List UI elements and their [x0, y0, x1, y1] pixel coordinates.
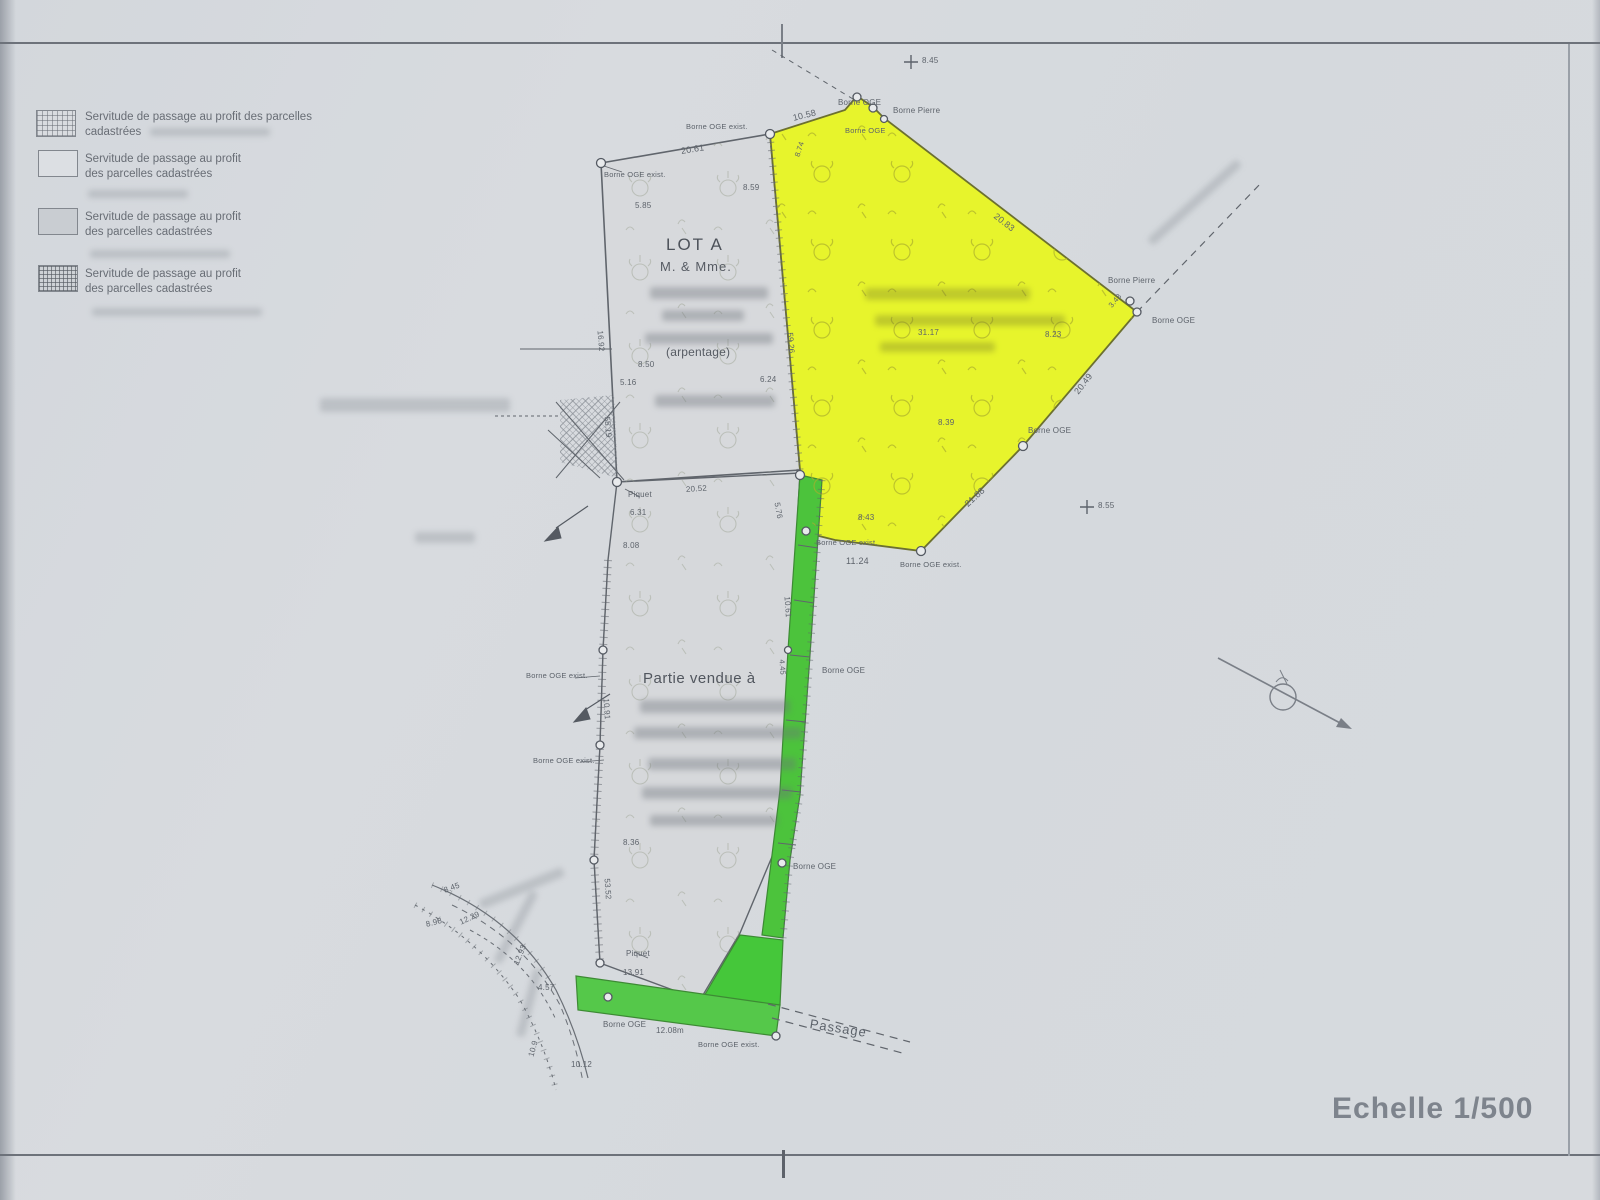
redaction-sold — [642, 787, 792, 799]
redaction-lot-a — [655, 395, 775, 407]
sold-parcel-caption: Partie vendue à — [643, 670, 756, 687]
redaction-lot-a — [662, 310, 744, 321]
dim-sold-left-a: 8.08 — [623, 541, 639, 550]
dim-strip-mid: 10.61 — [783, 596, 793, 618]
dim-yellow-inner-b: 31.17 — [918, 328, 939, 337]
borne-oge-exist-label: Borne OGE exist. — [686, 122, 748, 131]
dim-lot-a-right: 59.26 — [786, 332, 797, 354]
redaction-sold — [634, 727, 802, 739]
borne-oge-label: Borne OGE — [793, 862, 836, 871]
legend-item-3: Servitude de passage au profit des parce… — [85, 210, 241, 240]
legend-item-2-line2: des parcelles cadastrées — [85, 167, 241, 182]
dim-yellow-inner-c: 8.39 — [938, 418, 954, 427]
dim-sold-bottom-a: 13.91 — [623, 968, 644, 977]
redaction-lot-a — [645, 333, 773, 344]
redaction — [320, 398, 510, 412]
redaction-yellow — [875, 315, 1065, 326]
borne-oge-exist-label: Borne OGE exist. — [533, 756, 595, 765]
legend-swatch-grey — [38, 208, 78, 235]
dim-bottom-width: 12.08m — [656, 1026, 684, 1035]
lot-a-name: LOT A — [666, 235, 724, 255]
redaction-sold — [640, 700, 790, 713]
spot-height-855: 8.55 — [1098, 501, 1114, 510]
dim-strip-seg: 4.45 — [778, 659, 788, 675]
legend-item-2-line1: Servitude de passage au profit — [85, 152, 241, 167]
redaction — [90, 250, 230, 258]
redaction-sold — [650, 815, 778, 826]
borne-oge-exist-label: Borne OGE exist. — [900, 560, 962, 569]
spot-height-845: 8.45 — [922, 56, 938, 65]
dim-lot-a-inner-d: 5.16 — [620, 378, 636, 387]
vegetation-texture — [594, 96, 1137, 1000]
piquet-label: Piquet — [626, 949, 650, 958]
borne-oge-label: Borne OGE — [822, 666, 865, 675]
scale-label: Echelle 1/500 — [1332, 1092, 1533, 1126]
redaction — [92, 308, 262, 316]
borne-oge-exist-label: Borne OGE exist. — [526, 671, 588, 680]
legend-item-4-line1: Servitude de passage au profit — [85, 267, 241, 282]
redaction — [150, 128, 270, 136]
piquet-label: Piquet — [628, 490, 652, 499]
dim-sold-left-mid: 10.91 — [602, 698, 612, 720]
borne-oge-label: Borne OGE — [1152, 316, 1195, 325]
dim-lot-a-inner-a: 5.85 — [635, 201, 651, 210]
redaction-sold — [648, 758, 796, 770]
borne-oge-label: Borne OGE — [603, 1020, 646, 1029]
redaction — [88, 190, 188, 198]
legend-item-3-line1: Servitude de passage au profit — [85, 210, 241, 225]
borne-oge-label: Borne OGE — [845, 126, 886, 135]
redaction — [415, 532, 475, 543]
dim-sold-left-b: 8.36 — [623, 838, 639, 847]
lot-a-owner: M. & Mme. — [660, 259, 732, 274]
legend-item-1-line1: Servitude de passage au profit des parce… — [85, 110, 312, 125]
legend-swatch-plain — [38, 150, 78, 177]
borne-pierre-label: Borne Pierre — [1108, 276, 1155, 285]
legend-item-3-line2: des parcelles cadastrées — [85, 225, 241, 240]
dim-yellow-bottom-small: 8.43 — [858, 513, 874, 522]
dim-road-g: 10.12 — [571, 1060, 592, 1069]
borne-oge-label: Borne OGE — [1028, 426, 1071, 435]
north-arrow-symbol — [1218, 658, 1352, 729]
borne-oge-exist-label: Borne OGE exist. — [816, 538, 878, 547]
dim-sold-top: 20.52 — [686, 484, 708, 494]
dim-lot-a-left-lower: 55.19 — [603, 416, 614, 438]
legend-swatch-dense — [38, 265, 78, 292]
dim-sold-piquet-offset: 6.31 — [630, 508, 646, 517]
dim-road-e: 4.57 — [538, 983, 554, 992]
legend-item-4: Servitude de passage au profit des parce… — [85, 267, 241, 297]
redaction-lot-a — [650, 287, 768, 299]
scanned-survey-plan: { "page": { "scale": "Echelle 1/500" }, … — [0, 0, 1600, 1200]
dim-lot-a-inner-c: 8.50 — [638, 360, 654, 369]
dim-yellow-inner-a: 8.23 — [1045, 330, 1061, 339]
dim-lot-a-inner-e: 6.24 — [760, 375, 776, 384]
legend-item-4-line2: des parcelles cadastrées — [85, 282, 241, 297]
legend-swatch-crosshatch — [36, 110, 76, 137]
borne-pierre-label: Borne Pierre — [893, 106, 940, 115]
borne-oge-label: Borne OGE — [838, 98, 881, 107]
redaction-yellow — [880, 342, 995, 352]
dim-yellow-bottom: 11.24 — [846, 556, 869, 566]
lot-a-note: (arpentage) — [666, 345, 730, 359]
legend-item-2: Servitude de passage au profit des parce… — [85, 152, 241, 182]
borne-oge-exist-label: Borne OGE exist. — [604, 170, 666, 179]
borne-oge-exist-label: Borne OGE exist. — [698, 1040, 760, 1049]
dim-sold-left-lower: 53.52 — [603, 878, 613, 900]
dim-lot-a-inner-b: 8.59 — [743, 183, 759, 192]
road-curves — [415, 885, 588, 1090]
dim-lot-a-left-upper: 16.92 — [596, 330, 607, 352]
direction-arrows — [545, 506, 610, 722]
redaction-yellow — [865, 288, 1030, 300]
